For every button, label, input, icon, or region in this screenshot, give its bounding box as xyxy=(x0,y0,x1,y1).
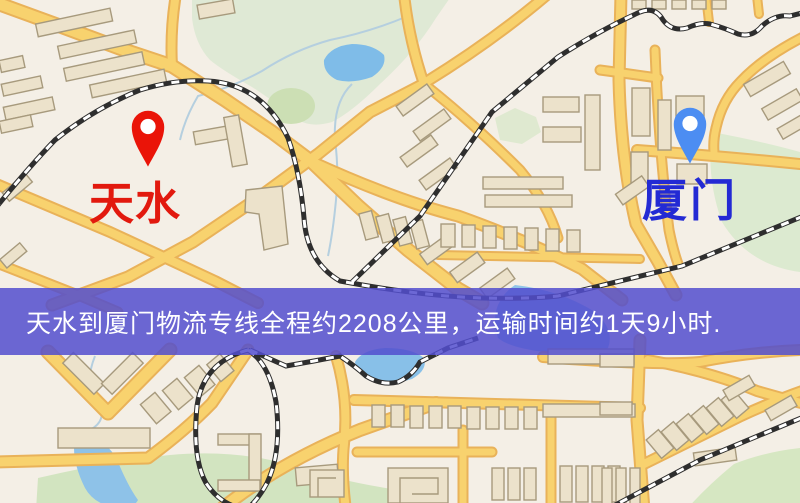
map-graphics xyxy=(0,0,800,503)
origin-pin-hole xyxy=(140,119,155,134)
destination-label: 厦门 xyxy=(642,179,738,224)
origin-label: 天水 xyxy=(89,182,181,227)
destination-pin-hole xyxy=(682,116,697,131)
banner-text: 天水到厦门物流专线全程约2208公里，运输时间约1天9小时. xyxy=(0,304,721,340)
destination-pin-icon[interactable] xyxy=(669,101,711,167)
route-banner: 天水到厦门物流专线全程约2208公里，运输时间约1天9小时. xyxy=(0,288,800,355)
origin-pin-icon[interactable] xyxy=(127,104,169,170)
map-canvas[interactable]: 天水 厦门 天水到厦门物流专线全程约2208公里，运输时间约1天9小时. xyxy=(0,0,800,503)
